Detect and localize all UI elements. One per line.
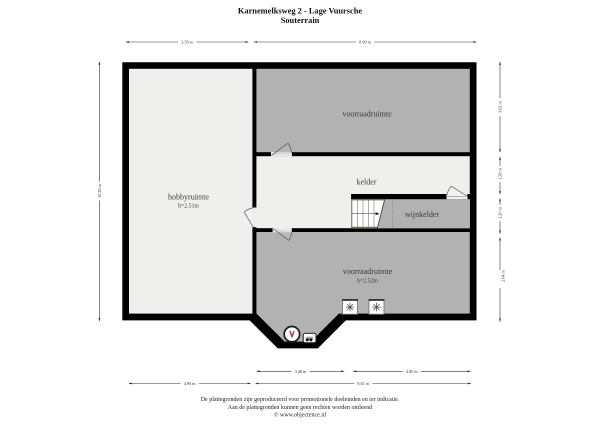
svg-text:De plattegronden zijn geproduc: De plattegronden zijn geproduceerd voor … xyxy=(201,397,400,403)
svg-text:kelder: kelder xyxy=(357,178,377,187)
svg-text:3.62 m: 3.62 m xyxy=(498,100,503,112)
svg-text:voorraadruimte: voorraadruimte xyxy=(343,267,393,276)
svg-text:1.20 m: 1.20 m xyxy=(498,206,503,218)
svg-text:wijnkelder: wijnkelder xyxy=(405,210,440,219)
svg-text:2.64 m: 2.64 m xyxy=(501,269,506,281)
svg-text:8.81 m: 8.81 m xyxy=(357,381,369,386)
svg-text:8.90 m: 8.90 m xyxy=(359,40,371,45)
svg-text:3.58 m: 3.58 m xyxy=(181,40,193,45)
svg-text:© www.objectence.nl: © www.objectence.nl xyxy=(274,411,326,418)
svg-text:Aan de plattegronden kunnen ge: Aan de plattegronden kunnen geen rechten… xyxy=(228,405,372,411)
svg-text:3.48 m: 3.48 m xyxy=(295,369,307,374)
svg-text:hobbyruimte: hobbyruimte xyxy=(168,193,209,202)
svg-text:h=2.52m: h=2.52m xyxy=(357,278,378,284)
svg-text:4.98 m: 4.98 m xyxy=(184,381,196,386)
svg-text:voorraadruimte: voorraadruimte xyxy=(342,109,392,118)
svg-text:10.26 m: 10.26 m xyxy=(97,183,102,197)
svg-text:1.58 m: 1.58 m xyxy=(498,167,503,179)
svg-text:4.80 m: 4.80 m xyxy=(406,369,418,374)
svg-text:h=2.51m: h=2.51m xyxy=(178,204,199,210)
svg-text:Karnemelksweg 2 - Lage Vuursch: Karnemelksweg 2 - Lage Vuursche xyxy=(238,6,363,15)
svg-text:Souterrain: Souterrain xyxy=(281,16,320,25)
